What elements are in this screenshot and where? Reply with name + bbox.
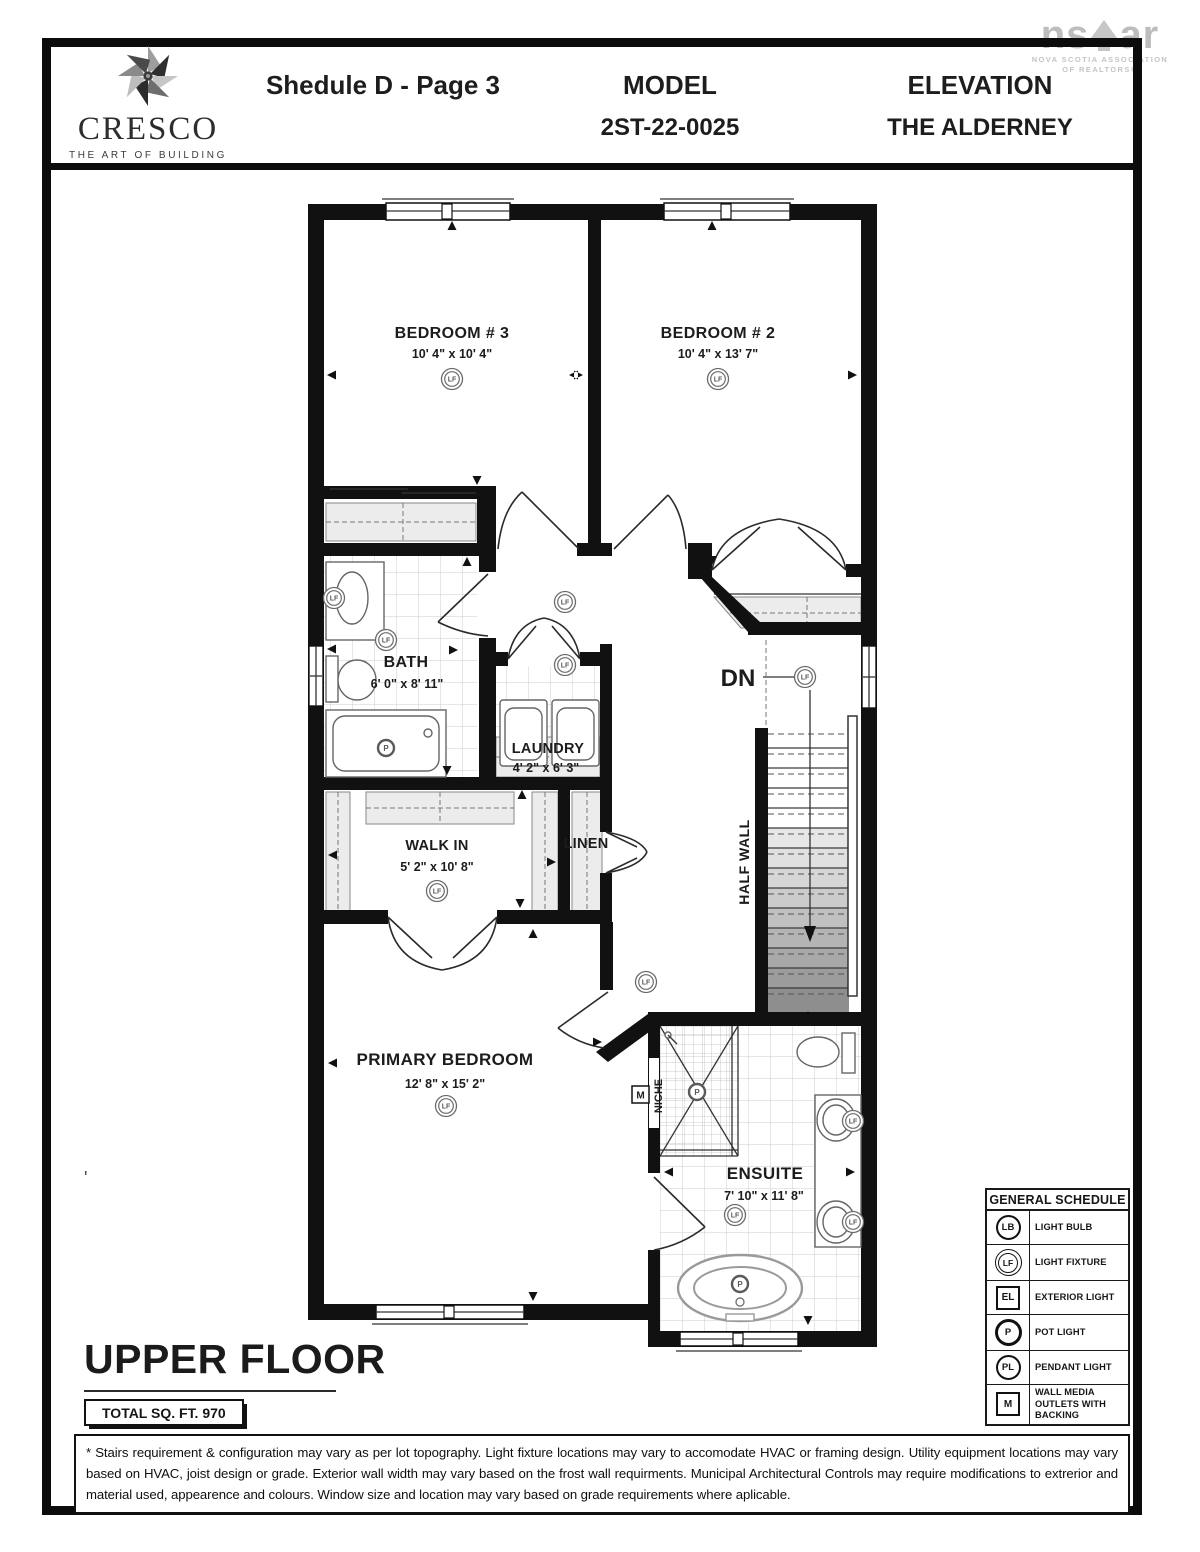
- elevation-column: ELEVATION THE ALDERNEY: [855, 70, 1105, 142]
- elevation-value: THE ALDERNEY: [855, 114, 1105, 142]
- legend-label: WALL MEDIA OUTLETS WITH BACKING: [1030, 1385, 1128, 1424]
- pendant-light-icon: PL: [996, 1355, 1021, 1380]
- elevation-label: ELEVATION: [855, 70, 1105, 101]
- legend-label: LIGHT FIXTURE: [1030, 1255, 1128, 1271]
- legend-row-wall-media: M WALL MEDIA OUTLETS WITH BACKING: [987, 1385, 1128, 1424]
- bedroom2-dims: 10' 4" x 13' 7": [678, 347, 758, 361]
- general-schedule-legend: GENERAL SCHEDULE LB LIGHT BULB LF LIGHT …: [985, 1188, 1130, 1426]
- bath-dims: 6' 0" x 8' 11": [371, 677, 444, 691]
- light-bulb-icon: LB: [996, 1215, 1021, 1240]
- linen-name: LINEN: [564, 836, 609, 852]
- model-label: MODEL: [570, 70, 770, 101]
- legend-row-pendant-light: PL PENDANT LIGHT: [987, 1351, 1128, 1385]
- floor-title-underline: [84, 1390, 336, 1392]
- window-stairs: [862, 646, 876, 708]
- window-primary: [372, 1305, 528, 1324]
- legend-title: GENERAL SCHEDULE: [987, 1190, 1128, 1211]
- legend-row-light-fixture: LF LIGHT FIXTURE: [987, 1245, 1128, 1281]
- cresco-brand: CRESCO THE ART OF BUILDING: [58, 44, 238, 161]
- pot-light-icon: P: [995, 1319, 1022, 1346]
- staircase: [763, 640, 857, 1012]
- ensuite-name: ENSUITE: [727, 1164, 803, 1183]
- floorplan-page: ns ar NOVA SCOTIA ASSOCIATION OF REALTOR…: [0, 0, 1200, 1552]
- laundry-name: LAUNDRY: [512, 741, 584, 757]
- walkin-dims: 5' 2" x 10' 8": [400, 860, 473, 874]
- model-column: MODEL 2ST-22-0025: [570, 70, 770, 142]
- window-ensuite: [676, 1332, 802, 1351]
- window-bedroom3: [382, 199, 514, 220]
- total-sqft-badge: TOTAL SQ. FT. 970: [84, 1399, 244, 1426]
- walkin-name: WALK IN: [405, 838, 468, 854]
- disclaimer-text: * Stairs requirement & configuration may…: [74, 1434, 1130, 1514]
- bath-toilet-tank: [326, 656, 338, 702]
- bedroom2-name: BEDROOM # 2: [661, 325, 776, 342]
- brand-tagline: THE ART OF BUILDING: [58, 150, 238, 161]
- bedroom3-name: BEDROOM # 3: [395, 325, 510, 342]
- bath-name: BATH: [384, 654, 429, 671]
- ensuite-toilet-tank: [842, 1033, 855, 1073]
- model-value: 2ST-22-0025: [570, 114, 770, 142]
- legend-label: LIGHT BULB: [1030, 1220, 1128, 1236]
- window-bath: [309, 646, 323, 706]
- schedule-title: Shedule D - Page 3: [248, 70, 518, 101]
- legend-label: PENDANT LIGHT: [1030, 1360, 1128, 1376]
- legend-row-pot-light: P POT LIGHT: [987, 1315, 1128, 1351]
- stairs-down-label: DN: [721, 665, 756, 692]
- ensuite-dims: 7' 10" x 11' 8": [724, 1189, 804, 1203]
- legend-label: EXTERIOR LIGHT: [1030, 1290, 1128, 1306]
- legend-label: POT LIGHT: [1030, 1325, 1128, 1341]
- floor-title: UPPER FLOOR: [84, 1336, 386, 1383]
- exterior-light-icon: EL: [996, 1286, 1020, 1310]
- window-bedroom2: [660, 199, 794, 220]
- brand-name: CRESCO: [58, 111, 238, 148]
- ensuite-toilet: [797, 1037, 839, 1067]
- stray-mark: ': [84, 1168, 87, 1189]
- stair-handrail: [848, 716, 857, 996]
- laundry-dims: 4' 2" x 6' 3": [513, 761, 580, 775]
- legend-row-light-bulb: LB LIGHT BULB: [987, 1211, 1128, 1245]
- primary-name: PRIMARY BEDROOM: [357, 1050, 534, 1069]
- primary-dims: 12' 8" x 15' 2": [405, 1077, 485, 1091]
- niche-label: NICHE: [653, 1079, 665, 1113]
- media-outlet-label: M: [636, 1091, 644, 1102]
- wall-media-icon: M: [996, 1392, 1020, 1416]
- bedroom3-dims: 10' 4" x 10' 4": [412, 347, 492, 361]
- cresco-pinwheel-icon: [112, 44, 184, 108]
- half-wall-label: HALF WALL: [736, 819, 752, 904]
- light-fixture-icon: LF: [995, 1249, 1022, 1276]
- legend-row-exterior-light: EL EXTERIOR LIGHT: [987, 1281, 1128, 1315]
